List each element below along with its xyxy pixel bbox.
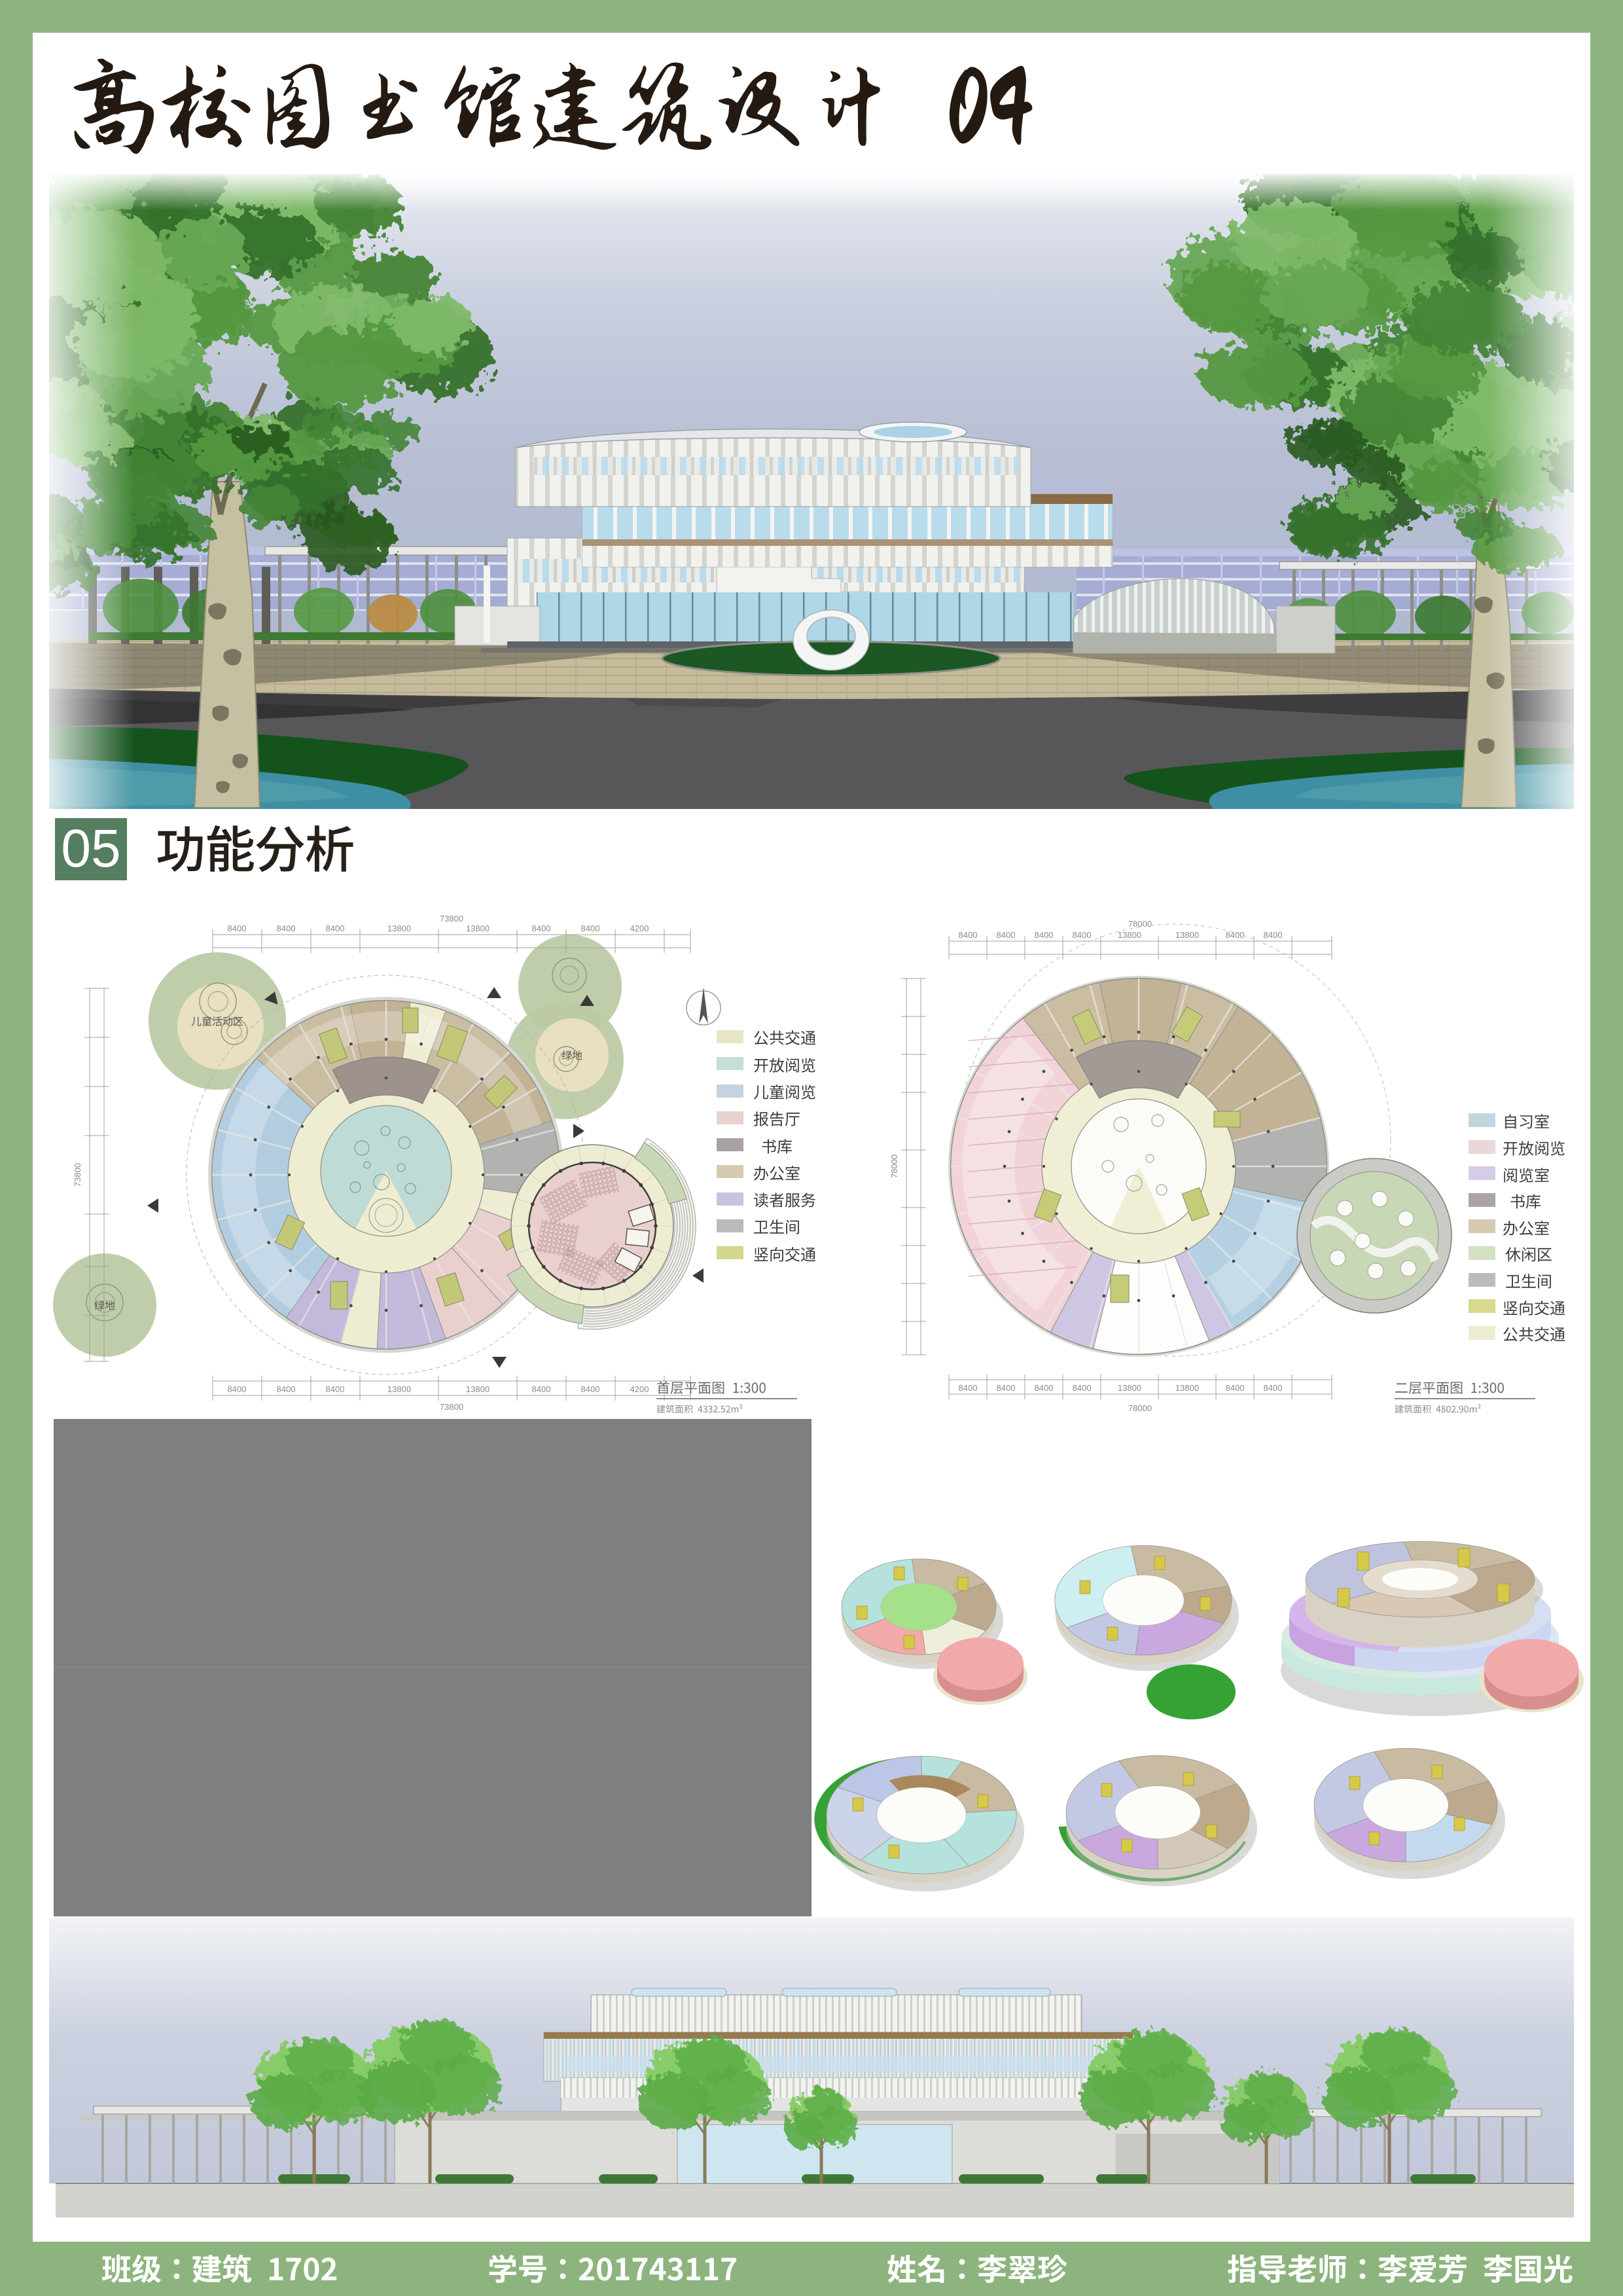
svg-text:8400: 8400 (1226, 930, 1245, 940)
svg-text:8400: 8400 (959, 1383, 978, 1393)
svg-text:13800: 13800 (466, 924, 490, 933)
svg-text:8400: 8400 (532, 924, 551, 933)
svg-text:8400: 8400 (959, 930, 978, 940)
svg-text:8400: 8400 (581, 924, 600, 933)
svg-text:13800: 13800 (466, 1384, 490, 1394)
svg-text:8400: 8400 (532, 1384, 551, 1394)
svg-text:8400: 8400 (997, 1383, 1016, 1393)
svg-text:8400: 8400 (1035, 930, 1054, 940)
svg-text:8400: 8400 (277, 924, 296, 933)
svg-text:13800: 13800 (1118, 1383, 1141, 1393)
svg-text:8400: 8400 (326, 1384, 345, 1394)
svg-text:8400: 8400 (1073, 1383, 1092, 1393)
svg-text:8400: 8400 (326, 924, 345, 933)
svg-text:8400: 8400 (228, 924, 247, 933)
svg-text:4200: 4200 (630, 924, 649, 933)
svg-text:4200: 4200 (630, 1384, 649, 1394)
svg-text:13800: 13800 (1118, 930, 1141, 940)
svg-text:8400: 8400 (1073, 930, 1092, 940)
svg-text:8400: 8400 (1035, 1383, 1054, 1393)
svg-text:8400: 8400 (277, 1384, 296, 1394)
svg-text:8400: 8400 (1264, 1383, 1283, 1393)
svg-text:8400: 8400 (1264, 930, 1283, 940)
svg-text:73800: 73800 (440, 914, 463, 924)
svg-text:13800: 13800 (387, 924, 411, 933)
svg-text:8400: 8400 (997, 930, 1016, 940)
svg-text:13800: 13800 (387, 1384, 411, 1394)
svg-text:8400: 8400 (228, 1384, 247, 1394)
svg-text:78000: 78000 (889, 1155, 899, 1178)
svg-text:8400: 8400 (1226, 1383, 1245, 1393)
svg-text:13800: 13800 (1175, 930, 1199, 940)
svg-text:73800: 73800 (440, 1402, 463, 1412)
svg-text:13800: 13800 (1175, 1383, 1199, 1393)
svg-text:78000: 78000 (1128, 1403, 1152, 1413)
svg-text:73800: 73800 (73, 1163, 82, 1187)
svg-text:8400: 8400 (581, 1384, 600, 1394)
